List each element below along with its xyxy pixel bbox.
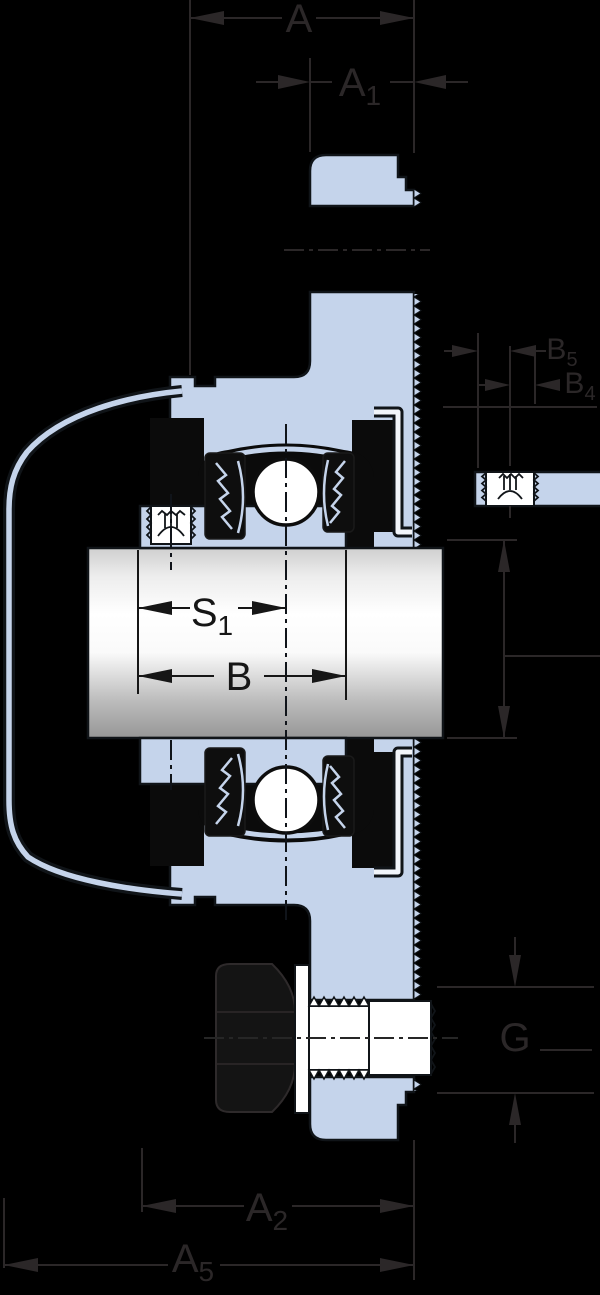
flange-serration-bottom-tip [414, 1079, 422, 1091]
seal-top-left [205, 453, 245, 539]
dim-label-B: B [226, 655, 253, 699]
flinger-groove-top [150, 418, 204, 512]
flinger-groove-bottom [150, 772, 204, 866]
dim-label-A: A [286, 0, 313, 41]
bearing-unit-drawing: A A1 B5 B4 G [0, 0, 600, 1295]
flange-bottom-tip [310, 1077, 414, 1140]
shaft [88, 548, 443, 738]
dim-label-G: G [499, 1016, 530, 1060]
flange-serration-top-tip [414, 190, 422, 206]
flange-top-tip [310, 155, 414, 206]
seal-top-right [323, 453, 354, 532]
seal-bottom-right [323, 756, 354, 836]
seal-bottom-left [205, 748, 245, 836]
